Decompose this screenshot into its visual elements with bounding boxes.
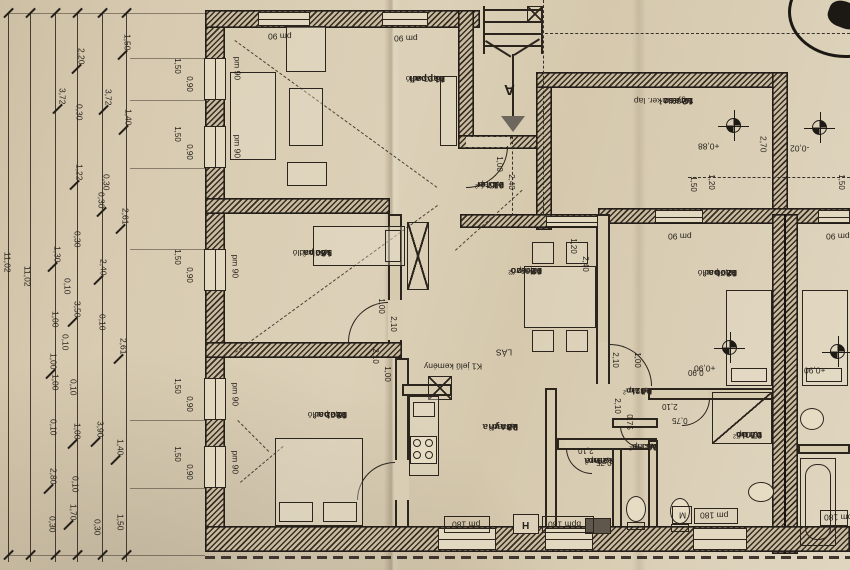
window-size: 0,90 [185,260,193,290]
window-tag: pm 90 [668,232,692,241]
window-tag: pm 90 [231,447,240,477]
stair-corner-box [527,6,543,22]
dim-label: 1,50 [837,167,845,197]
section-marker-label: A [504,82,515,97]
room-floor: ker.lap [493,421,518,432]
chair [532,242,554,264]
chimney-note: LÁS [496,348,512,357]
pillow [385,230,401,262]
wall-terasz-top [536,72,788,88]
window-tag: pm 90 [233,53,242,83]
section-marker-arrow [501,116,525,132]
tv-cabinet [440,76,457,146]
dim-label: 0,30 [73,224,82,254]
room-floor: ker.lap [737,429,762,440]
room-floor: ker.lap [627,385,652,396]
toilet-tank [627,522,645,530]
stair-tread [483,33,543,35]
dim-label: 0,10 [49,412,58,442]
window [655,210,703,223]
room-floor: lam. padló [406,73,445,84]
room-floor: lam. padló [293,247,332,258]
window [258,12,310,26]
door-size: 0,75 [672,416,688,424]
room-floor: lam. padló [698,267,737,278]
door-gap [395,460,409,500]
bathtub [800,458,836,546]
window-size: 2,40 [581,249,589,279]
dim-label: 0,10 [63,271,72,301]
dimension-line [8,12,9,562]
roof-overhang-dash [543,0,544,215]
window-tag: pm 90 [394,34,418,43]
window-tag: pm 90 [233,131,242,161]
extension-line [8,555,205,556]
coffee-table [289,88,323,146]
wall-terasz-right [772,72,788,214]
door-size: 1,00 [383,359,391,389]
door-size: 2,10 [613,391,621,421]
window-size: 0,90 [185,457,193,487]
pillow [323,502,357,522]
window-tag: pm 90 [231,251,240,281]
door-size: 2,10 [611,345,619,375]
level-marker [722,340,737,355]
door-size: 2,10 [371,341,379,371]
window-tag: pm 180 [700,511,728,520]
window [382,12,428,26]
washbasin [800,408,824,430]
toilet [626,496,646,522]
level-label: +0,90 [804,366,826,375]
ground-line [205,556,850,559]
window-size: 1,50 [173,371,181,401]
window-tag: pm 90 [826,232,850,241]
room-floor: ker.lap [517,265,542,276]
party-wall-joint [784,214,786,554]
stove-burner [425,451,433,459]
ceiling-diagonal [237,420,269,452]
dim-label: 0,30 [75,97,84,127]
window [204,446,226,488]
door-size: 0,75 [596,458,612,466]
dim-label: 0,10 [71,469,80,499]
stove-burner [413,439,421,447]
door-size: 2,10 [389,309,397,339]
door-size: 2,40 [507,167,515,197]
dimension-line [126,12,127,562]
dim-total: 11,02 [3,247,12,277]
window-size: 1,50 [173,119,181,149]
dim-small: 0,90 [688,368,704,376]
window-size: 0,90 [185,389,193,419]
window [546,216,598,227]
window-size: 0,90 [185,137,193,167]
washbasin [748,482,774,502]
dim-label: 0,10 [98,307,107,337]
dim-total: 11,02 [23,261,32,291]
door-gap [598,342,608,384]
flue-label: H [522,519,529,529]
dim-label: 0,10 [69,372,78,402]
window-size: 0,90 [185,69,193,99]
window-size: 1,20 [569,231,577,261]
stair-arrow-line [485,40,511,57]
wall-mirror-furdo [798,444,850,454]
dim-label: 1,50 [689,169,697,199]
window-size: 1,50 [173,439,181,469]
window [818,210,850,223]
bathtub-inner [805,464,831,540]
kitchen-sink [413,402,435,417]
room-floor: lam. padló [308,409,347,420]
door-size: 2,10 [662,402,678,410]
extension-line [130,488,205,489]
window-tag: M [679,511,686,520]
level-marker [812,120,827,135]
extension-line [130,249,205,250]
wall-konyha-kozl [545,388,557,532]
pillow [731,368,767,382]
door-tag: pm 180 [452,520,480,529]
level-label: +0,88 [698,142,720,151]
dim-label: 2,70 [759,129,768,159]
chair [566,330,588,352]
dim-label: 0,30 [93,512,102,542]
dim-label: 1,00 [51,304,60,334]
floor-plan-photo: 1,50 2,20 3,72 0,30 3,72 1,40 1,22 0,30 … [0,0,850,570]
extension-line [8,13,205,14]
extension-line [130,168,205,169]
stair-rail [483,6,485,54]
room-floor: fagyálló ker. lap [634,95,693,106]
room-floor: ker.lap [479,179,504,190]
extension-line [130,420,205,421]
wall-wc-furdo [648,440,658,530]
side-table [287,162,327,186]
wall-eloter-right [536,75,552,230]
dim-label: 0,10 [61,327,70,357]
window-size: 1,50 [173,242,181,272]
door-tag: pm 180 [824,513,850,522]
armchair [286,26,326,72]
window-bath [693,528,747,550]
chimney-note: K1 jelű kemény [424,362,482,371]
wardrobe [407,222,429,290]
wall-nappali-szoba10 [205,198,390,214]
door-size: 1,00 [633,345,641,375]
door-gap [680,390,708,398]
dim-label: 1,50 [116,507,125,537]
level-label: -0,02 [790,144,809,153]
toilet-tank [671,524,689,532]
room-floor: ker.lap [633,441,658,452]
door-size: 1,00 [377,291,385,321]
wall-szoba08-top [598,208,850,224]
dim-label: 0,30 [48,509,57,539]
window-size: 1,50 [173,51,181,81]
stove-burner [425,439,433,447]
wall-nappali-right [458,10,474,140]
window [204,378,226,420]
window [204,126,226,168]
stair-arrow-line [514,39,540,56]
pillow [279,502,313,522]
extension-line [130,58,205,59]
extension-line [130,100,205,101]
window-tag: pm 90 [231,379,240,409]
stove-burner [413,451,421,459]
door-size: 2,10 [578,446,594,454]
wall-top [205,10,480,28]
window-tag: pm 90 [268,32,292,41]
door-size: 1,00 [495,149,503,179]
door-size: 0,75 [625,407,633,437]
chair [532,330,554,352]
level-marker [726,118,741,133]
window [204,58,226,100]
window [204,249,226,291]
door-tag: bpm 180 [548,520,581,529]
level-marker [830,344,845,359]
dim-label: 1,20 [707,167,715,197]
